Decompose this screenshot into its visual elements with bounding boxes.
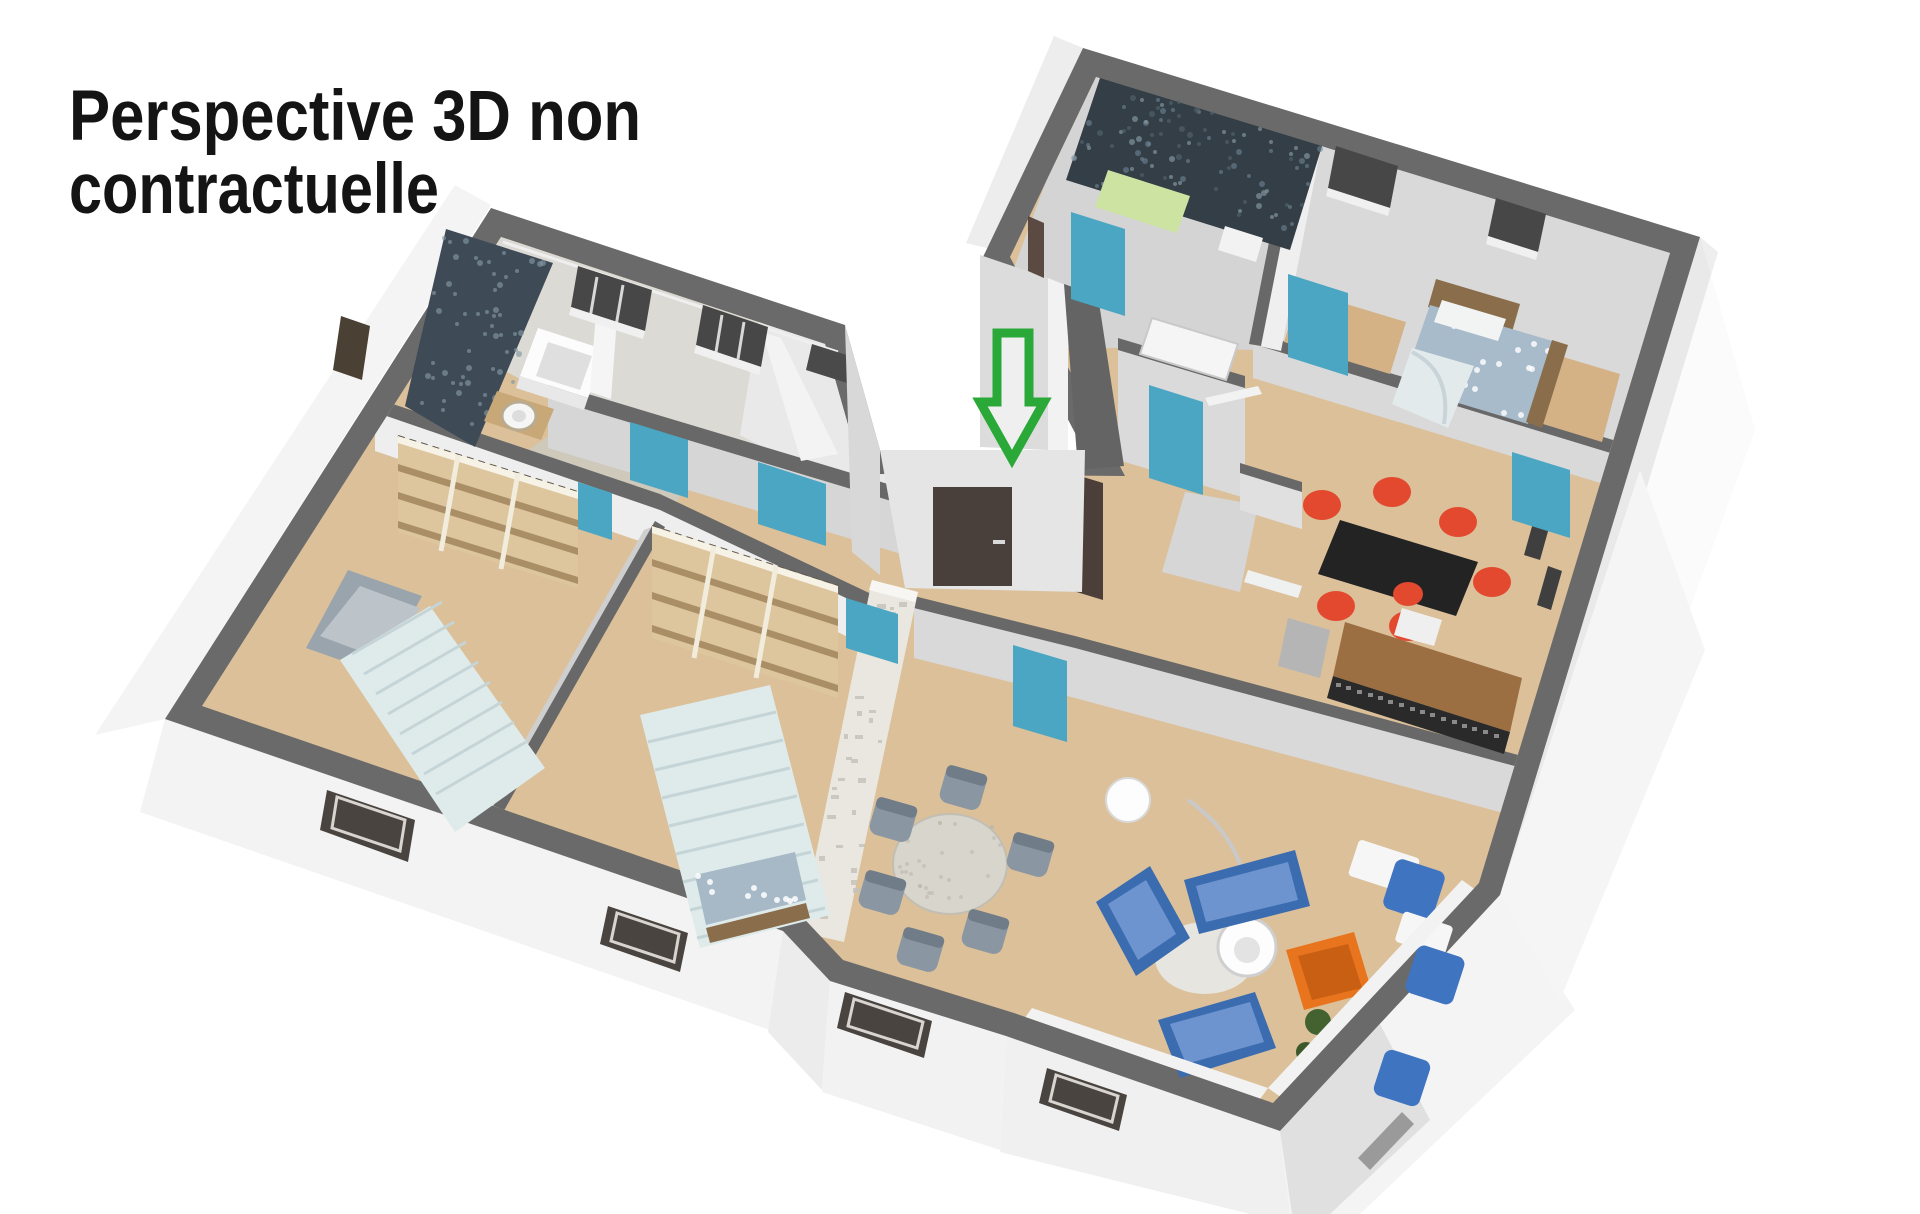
svg-text:contractuelle: contractuelle xyxy=(69,150,439,229)
svg-text:Perspective 3D non: Perspective 3D non xyxy=(69,77,641,156)
